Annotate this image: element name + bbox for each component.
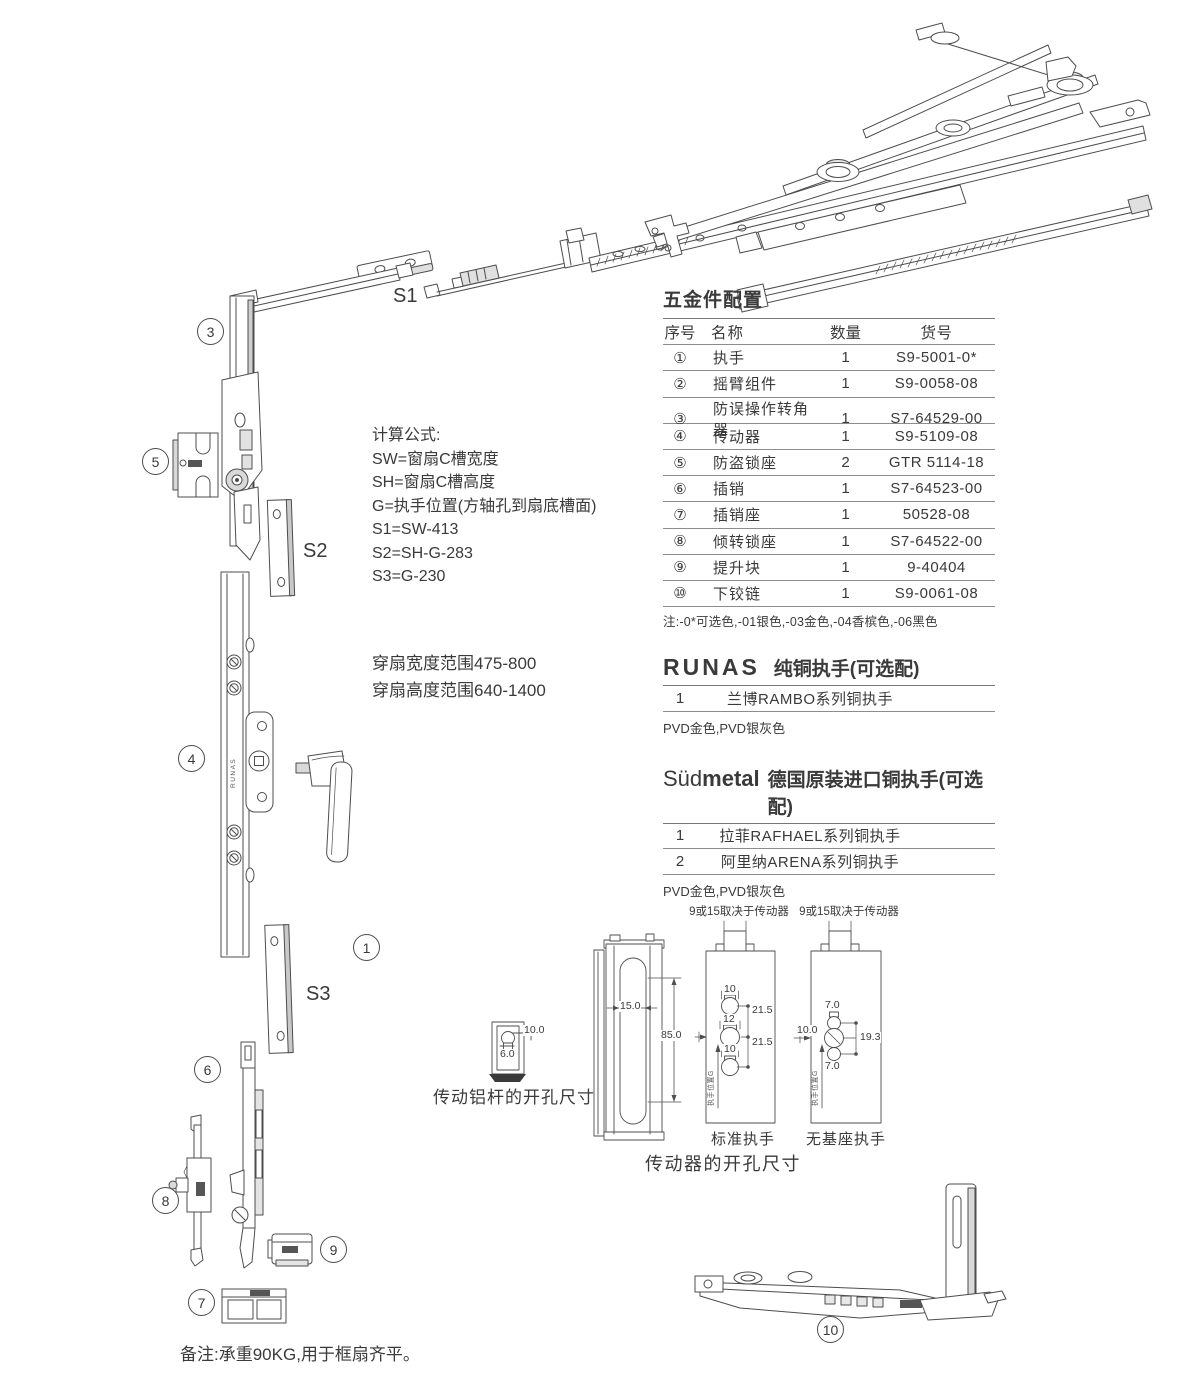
dim-nb-bot: 7.0 — [824, 1061, 841, 1072]
part-drawing-bottom-hinge — [695, 1184, 1006, 1320]
row-code: S7-64523-00 — [878, 480, 995, 497]
dim-std-spacing-top: 21.5 — [751, 1005, 773, 1016]
row-no: ⑧ — [663, 532, 697, 550]
formula-line: SH=窗扇C槽高度 — [372, 471, 596, 495]
row-qty: 1 — [813, 533, 878, 550]
sudmetal-brand-light: Süd — [663, 766, 702, 792]
dim-nb-right: 19.3 — [859, 1032, 881, 1043]
part-drawing-s2-plate — [267, 500, 294, 597]
runas-title: 纯铜执手(可选配) — [774, 654, 920, 681]
row-no: ⑥ — [663, 480, 697, 498]
dim-profile-slot: 15.0 — [619, 1001, 641, 1012]
label-s1: S1 — [393, 285, 417, 308]
standard-handle-caption: 标准执手 — [711, 1128, 775, 1149]
formula-line: S3=G-230 — [372, 565, 596, 589]
row-qty: 2 — [813, 454, 878, 471]
row-no: ④ — [663, 427, 697, 445]
row-name: 倾转锁座 — [697, 531, 813, 552]
parts-table-header: 序号 名称 数量 货号 — [663, 319, 995, 345]
sudmetal-brand-bold: metal — [702, 766, 759, 792]
callout-item-4: 4 — [178, 745, 205, 772]
sash-range-block: 穿扇宽度范围475-800 穿扇高度范围640-1400 — [372, 650, 546, 704]
row-name: 传动器 — [697, 426, 813, 447]
dim-rod-width: 10.0 — [523, 1025, 545, 1036]
row-name: 插销座 — [697, 504, 813, 525]
table-row: ④传动器1S9-5109-08 — [663, 424, 995, 450]
option-no: 1 — [663, 690, 697, 707]
dim-nb-top: 7.0 — [824, 1000, 841, 1011]
table-row: ⑨提升块19-40404 — [663, 555, 995, 581]
row-code: S7-64529-00 — [878, 410, 995, 427]
runas-heading: RUNAS 纯铜执手(可选配) — [663, 654, 995, 681]
dim-std-spacing-bot: 21.5 — [751, 1037, 773, 1048]
row-qty: 1 — [813, 428, 878, 445]
option-no: 1 — [663, 827, 697, 844]
dim-std-mid: 12 — [722, 1014, 736, 1025]
rod-template-caption: 传动铝杆的开孔尺寸 — [433, 1083, 595, 1108]
part-drawing-lift-block — [268, 1234, 312, 1266]
sash-height-range: 穿扇高度范围640-1400 — [372, 677, 546, 704]
row-qty: 1 — [813, 506, 878, 523]
row-no: ⑤ — [663, 454, 697, 472]
dim-nb-left: 10.0 — [796, 1025, 818, 1036]
label-s3: S3 — [306, 983, 330, 1006]
part-drawing-bolt — [230, 1042, 263, 1268]
runas-brand: RUNAS — [663, 654, 760, 681]
row-name: 执手 — [697, 347, 813, 368]
callout-item-8: 8 — [152, 1187, 179, 1214]
option-row: 1 拉菲RAFHAEL系列铜执手 — [663, 824, 995, 850]
part-drawing-gear-drive — [221, 572, 273, 957]
row-name: 摇臂组件 — [697, 373, 813, 394]
part-drawing-s3-plate — [265, 925, 293, 1054]
dim-std-bot: 10 — [723, 1044, 737, 1055]
nobase-handle-caption: 无基座执手 — [806, 1128, 886, 1149]
part-drawing-lock-keeper — [173, 433, 218, 497]
row-code: S9-0061-08 — [878, 585, 995, 602]
gear-template-caption: 传动器的开孔尺寸 — [645, 1150, 801, 1176]
parts-table-title: 五金件配置 — [663, 285, 995, 312]
row-name: 提升块 — [697, 557, 813, 578]
option-no: 2 — [663, 853, 697, 870]
drawing-nobase-handle-template — [794, 921, 881, 1123]
row-no: ⑦ — [663, 506, 697, 524]
row-qty: 1 — [813, 480, 878, 497]
table-row: ⑩下铰链1S9-0061-08 — [663, 581, 995, 607]
table-row: ⑦插销座150528-08 — [663, 502, 995, 528]
formula-title: 计算公式: — [372, 424, 596, 448]
callout-item-9: 9 — [320, 1236, 347, 1263]
row-qty: 1 — [813, 349, 878, 366]
part-drawing-handle — [296, 751, 352, 862]
row-code: S9-0058-08 — [878, 375, 995, 392]
callout-number: 6 — [204, 1062, 212, 1078]
col-header-name: 名称 — [697, 321, 813, 343]
spec-column: 五金件配置 序号 名称 数量 货号 ①执手1S9-5001-0* ②摇臂组件1S… — [663, 285, 995, 900]
line-art-layer — [0, 0, 1200, 1400]
option-name: 兰博RAMBO系列铜执手 — [697, 688, 923, 709]
callout-number: 3 — [207, 324, 215, 340]
row-name: 防盗锁座 — [697, 452, 813, 473]
formula-line: G=执手位置(方轴孔到扇底槽面) — [372, 495, 596, 519]
part-drawing-bolt-keeper — [222, 1289, 286, 1323]
standard-template-header: 9或15取决于传动器 — [684, 903, 794, 919]
callout-item-10: 10 — [817, 1316, 844, 1343]
label-s2: S2 — [303, 540, 327, 563]
callout-number: 4 — [188, 751, 196, 767]
row-qty: 1 — [813, 559, 878, 576]
row-no: ③ — [663, 410, 697, 428]
callout-item-6: 6 — [194, 1056, 221, 1083]
row-no: ⑨ — [663, 558, 697, 576]
row-no: ② — [663, 375, 697, 393]
callout-number: 1 — [363, 940, 371, 956]
hardware-diagram-page: 3 5 4 1 6 8 9 7 10 S1 S2 S3 RUNAS 计算公式: … — [0, 0, 1200, 1400]
dim-std-top: 10 — [723, 984, 737, 995]
row-name: 下铰链 — [697, 583, 813, 604]
sudmetal-table: 1 拉菲RAFHAEL系列铜执手 2 阿里纳ARENA系列铜执手 — [663, 823, 995, 875]
row-code: 50528-08 — [878, 506, 995, 523]
col-header-qty: 数量 — [813, 321, 878, 343]
row-code: S7-64522-00 — [878, 533, 995, 550]
callout-number: 8 — [162, 1193, 170, 1209]
callout-number: 10 — [823, 1322, 839, 1338]
part-drawing-swing-arm-assembly — [424, 23, 1152, 312]
formula-line: S2=SH-G-283 — [372, 542, 596, 566]
footer-note: 备注:承重90KG,用于框扇齐平。 — [180, 1340, 420, 1365]
callout-item-3: 3 — [197, 318, 224, 345]
col-header-no: 序号 — [663, 321, 697, 343]
callout-item-5: 5 — [142, 448, 169, 475]
gear-bar-brand-text: RUNAS — [230, 758, 237, 788]
row-name: 插销 — [697, 478, 813, 499]
formula-line: SW=窗扇C槽宽度 — [372, 448, 596, 472]
sudmetal-title: 德国原装进口铜执手(可选配) — [768, 765, 995, 819]
option-row: 2 阿里纳ARENA系列铜执手 — [663, 849, 995, 875]
dim-rod-height: 6.0 — [499, 1049, 516, 1060]
row-code: GTR 5114-18 — [878, 454, 995, 471]
runas-table: 1 兰博RAMBO系列铜执手 — [663, 685, 995, 712]
row-no: ⑩ — [663, 584, 697, 602]
table-row: ③防误操作转角器1S7-64529-00 — [663, 398, 995, 424]
parts-table: 序号 名称 数量 货号 ①执手1S9-5001-0* ②摇臂组件1S9-0058… — [663, 318, 995, 607]
row-qty: 1 — [813, 585, 878, 602]
callout-item-7: 7 — [188, 1289, 215, 1316]
nobase-axis-label: 执手位置G — [810, 1070, 820, 1106]
sudmetal-heading: Südmetal 德国原装进口铜执手(可选配) — [663, 765, 995, 819]
formula-block: 计算公式: SW=窗扇C槽宽度 SH=窗扇C槽高度 G=执手位置(方轴孔到扇底槽… — [372, 424, 596, 589]
callout-number: 5 — [152, 454, 160, 470]
row-qty: 1 — [813, 410, 878, 427]
runas-finish-note: PVD金色,PVD银灰色 — [663, 718, 995, 737]
sash-width-range: 穿扇宽度范围475-800 — [372, 650, 546, 677]
dim-profile-length: 85.0 — [660, 1030, 682, 1041]
callout-number: 7 — [198, 1295, 206, 1311]
formula-line: S1=SW-413 — [372, 518, 596, 542]
table-row: ⑤防盗锁座2GTR 5114-18 — [663, 450, 995, 476]
sudmetal-finish-note: PVD金色,PVD银灰色 — [663, 881, 995, 900]
option-name: 拉菲RAFHAEL系列铜执手 — [697, 825, 923, 846]
row-code: 9-40404 — [878, 559, 995, 576]
callout-item-1: 1 — [353, 934, 380, 961]
table-row: ⑥插销1S7-64523-00 — [663, 476, 995, 502]
color-options-note: 注:-0*可选色,-01银色,-03金色,-04香槟色,-06黑色 — [663, 611, 995, 630]
callout-number: 9 — [330, 1242, 338, 1258]
row-qty: 1 — [813, 375, 878, 392]
option-name: 阿里纳ARENA系列铜执手 — [697, 851, 923, 872]
table-row: ②摇臂组件1S9-0058-08 — [663, 371, 995, 397]
table-row: ①执手1S9-5001-0* — [663, 345, 995, 371]
nobase-template-header: 9或15取决于传动器 — [794, 903, 904, 919]
table-row: ⑧倾转锁座1S7-64522-00 — [663, 529, 995, 555]
std-axis-label: 执手位置G — [706, 1070, 716, 1106]
row-no: ① — [663, 349, 697, 367]
option-row: 1 兰博RAMBO系列铜执手 — [663, 686, 995, 712]
row-code: S9-5109-08 — [878, 428, 995, 445]
row-code: S9-5001-0* — [878, 349, 995, 366]
col-header-code: 货号 — [878, 321, 995, 343]
